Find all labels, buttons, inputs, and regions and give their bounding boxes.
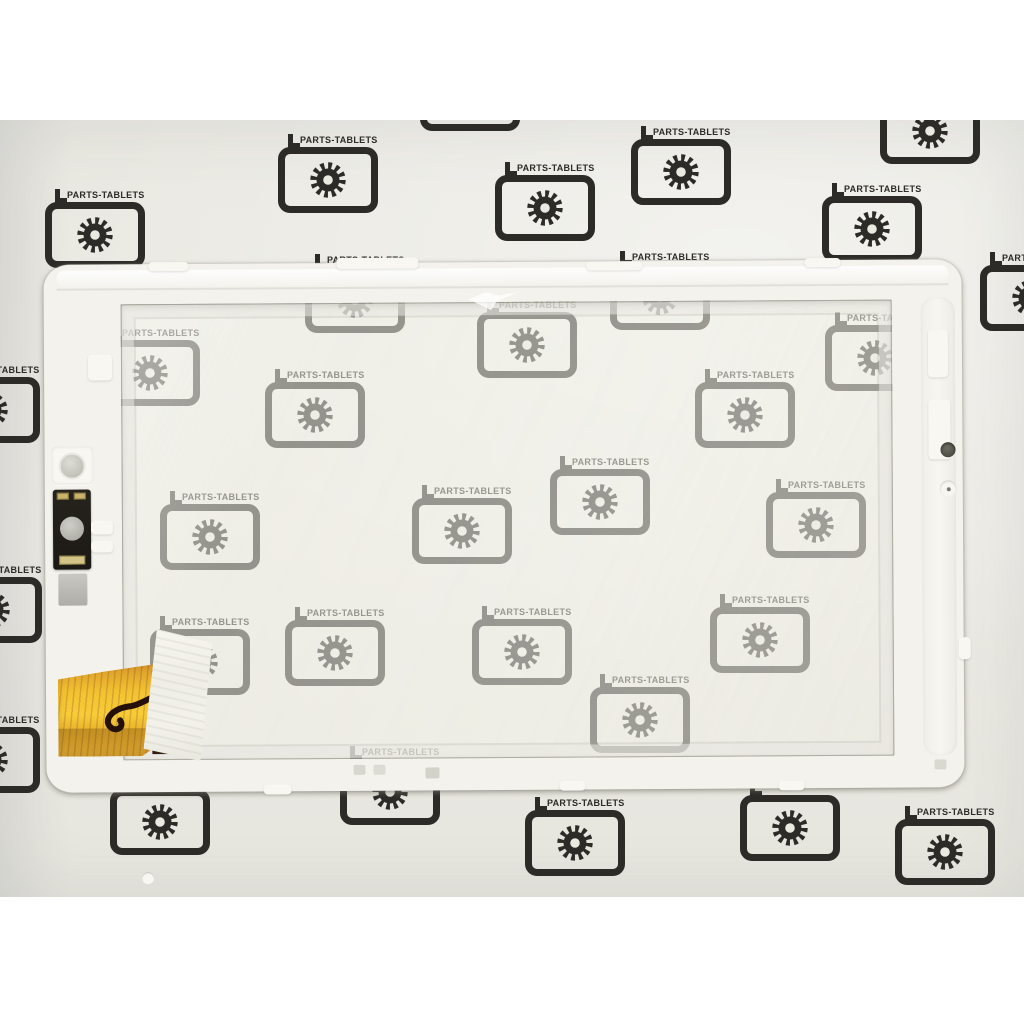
mold-tab [148, 262, 188, 271]
tablet-icon [0, 377, 40, 443]
watermark: PARTS-TABLETS [895, 806, 995, 885]
gear-icon [0, 738, 12, 782]
gear-icon [659, 150, 703, 194]
mold-tab [560, 781, 586, 791]
tablet-icon [822, 196, 922, 262]
gear-icon [73, 213, 117, 257]
watermark: PARTS-TABLETS [278, 134, 378, 213]
tablet-icon [525, 810, 625, 876]
tablet-icon [0, 727, 40, 793]
watermark: PARTS-TABLETS [980, 252, 1024, 331]
touch-glass [121, 300, 895, 761]
tablet-icon [495, 175, 595, 241]
tablet-icon [895, 819, 995, 885]
tablet-icon [110, 789, 210, 855]
watermark: PARTS-TABLETS [880, 120, 980, 164]
watermark: PARTS-TABLETS [631, 126, 731, 205]
watermark: PARTS-TABLETS [0, 714, 40, 793]
watermark: PARTS-TABLETS [0, 364, 40, 443]
gear-icon [1008, 276, 1024, 320]
watermark: PARTS-TABLETS [740, 782, 840, 861]
mold-tab [91, 540, 113, 552]
alignment-hole-center [947, 487, 951, 491]
watermark: PARTS-TABLETS [822, 183, 922, 262]
tablet-icon [420, 120, 520, 131]
tablet-icon [0, 577, 42, 643]
gold-contact-pad [74, 493, 86, 500]
gear-icon [0, 388, 12, 432]
watermark-text: PARTS-TABLETS [980, 252, 1024, 265]
watermark: PARTS-TABLETS [420, 120, 520, 131]
tablet-icon [278, 147, 378, 213]
gold-contact-pad [59, 556, 85, 565]
camera-lens-hole [59, 453, 86, 480]
gear-icon [306, 158, 350, 202]
mold-mark [934, 759, 946, 769]
screw-hole [940, 442, 955, 457]
camera-aperture [60, 517, 84, 541]
gear-icon [138, 800, 182, 844]
tablet-icon [631, 139, 731, 205]
gear-icon [0, 588, 14, 632]
mold-mark [425, 767, 439, 778]
page: PARTS-TABLETS PARTS-TABLETS PARTS-TABLET… [0, 0, 1024, 1024]
tablet-icon [980, 265, 1024, 331]
watermark: PARTS-TABLETS [525, 797, 625, 876]
watermark-text: PARTS-TABLETS [0, 364, 40, 377]
gear-icon [850, 207, 894, 251]
mold-tab [804, 258, 840, 267]
gear-icon [908, 120, 952, 153]
gold-contact-pad [57, 493, 69, 500]
digitizer-device [43, 259, 964, 793]
gear-icon [523, 186, 567, 230]
tablet-icon [880, 120, 980, 164]
mold-tab [779, 780, 805, 790]
tablet-icon [45, 202, 145, 268]
mold-tab [264, 784, 292, 794]
mold-mark [353, 765, 365, 775]
gear-icon [768, 806, 812, 850]
gear-icon [553, 821, 597, 865]
mold-tab [336, 258, 418, 270]
mold-tab [91, 520, 113, 534]
rivet-dot [142, 872, 154, 884]
mold-tab [928, 329, 948, 377]
watermark: PARTS-TABLETS [495, 162, 595, 241]
watermark: PARTS-TABLETS [45, 189, 145, 268]
mold-tab [959, 637, 971, 659]
product-photo: PARTS-TABLETS PARTS-TABLETS PARTS-TABLET… [0, 120, 1024, 897]
watermark: PARTS-TABLETS [0, 564, 42, 643]
mold-tab [88, 354, 112, 380]
gear-icon [923, 830, 967, 874]
mold-tab [586, 261, 642, 270]
watermark-text: PARTS-TABLETS [0, 564, 42, 577]
mold-mark [373, 765, 385, 775]
watermark-text: PARTS-TABLETS [0, 714, 40, 727]
sensor-window [58, 574, 87, 606]
tablet-icon [740, 795, 840, 861]
